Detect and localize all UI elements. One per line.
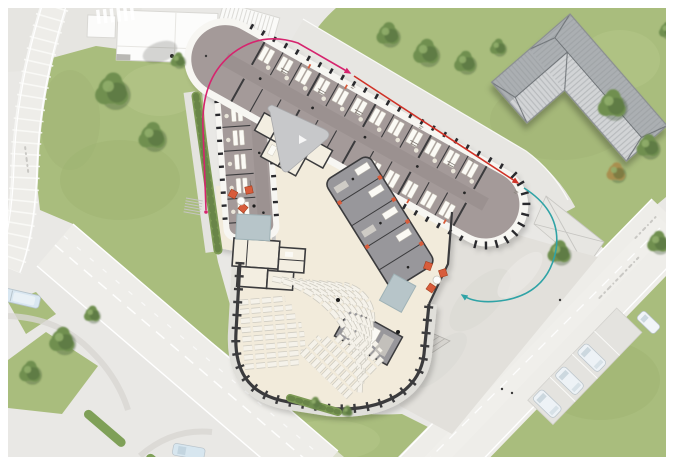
bed: [234, 154, 240, 169]
tree-highlight: [604, 96, 613, 105]
tree-highlight: [459, 56, 466, 63]
facade-tick: [272, 188, 277, 191]
entrance-shadow: [116, 54, 130, 60]
tree-highlight: [174, 56, 179, 61]
facade-tick: [273, 201, 278, 204]
table-round: [237, 197, 245, 205]
tree-highlight: [652, 236, 659, 243]
bed: [241, 154, 247, 169]
tree-highlight: [55, 333, 64, 342]
tree-highlight: [419, 45, 428, 54]
bed: [236, 178, 242, 193]
person-dot: [511, 392, 513, 394]
tree-highlight: [103, 81, 114, 92]
facade-tick: [219, 165, 224, 168]
facade-tick: [220, 178, 225, 181]
facade-tick: [221, 191, 226, 194]
person-dot: [501, 388, 503, 390]
plan-area: [0, 1, 674, 474]
tree-highlight: [611, 167, 617, 173]
water-feature-west: [236, 214, 271, 241]
table-round: [433, 276, 441, 284]
tree-highlight: [494, 43, 499, 48]
facade-tick: [218, 152, 223, 155]
facade-tick: [274, 214, 279, 217]
chair-red: [245, 186, 254, 195]
fixture: [285, 252, 293, 258]
column-dot: [252, 204, 255, 207]
facade-tick: [271, 175, 276, 178]
chair-red: [245, 186, 254, 195]
person-dot: [559, 299, 561, 301]
tree-highlight: [145, 129, 154, 138]
tree-highlight: [312, 400, 316, 404]
tree-highlight: [642, 140, 650, 148]
tree-highlight: [382, 28, 390, 36]
facade-tick: [222, 204, 227, 207]
person-dot: [205, 55, 207, 57]
site-plan: [0, 0, 674, 474]
column-dot: [336, 298, 340, 302]
bed: [233, 130, 239, 145]
facade-tick: [217, 139, 222, 142]
facade-tick: [215, 114, 220, 117]
tree-highlight: [24, 366, 31, 373]
column-dot: [396, 330, 400, 334]
bed: [239, 130, 245, 145]
car-glass: [177, 446, 186, 455]
site-plan-svg: [0, 0, 674, 474]
facade-tick: [216, 126, 221, 129]
tree-highlight: [344, 408, 348, 412]
route-start-dot: [204, 210, 208, 214]
tree-highlight: [88, 310, 93, 315]
facade-tick: [222, 217, 227, 220]
